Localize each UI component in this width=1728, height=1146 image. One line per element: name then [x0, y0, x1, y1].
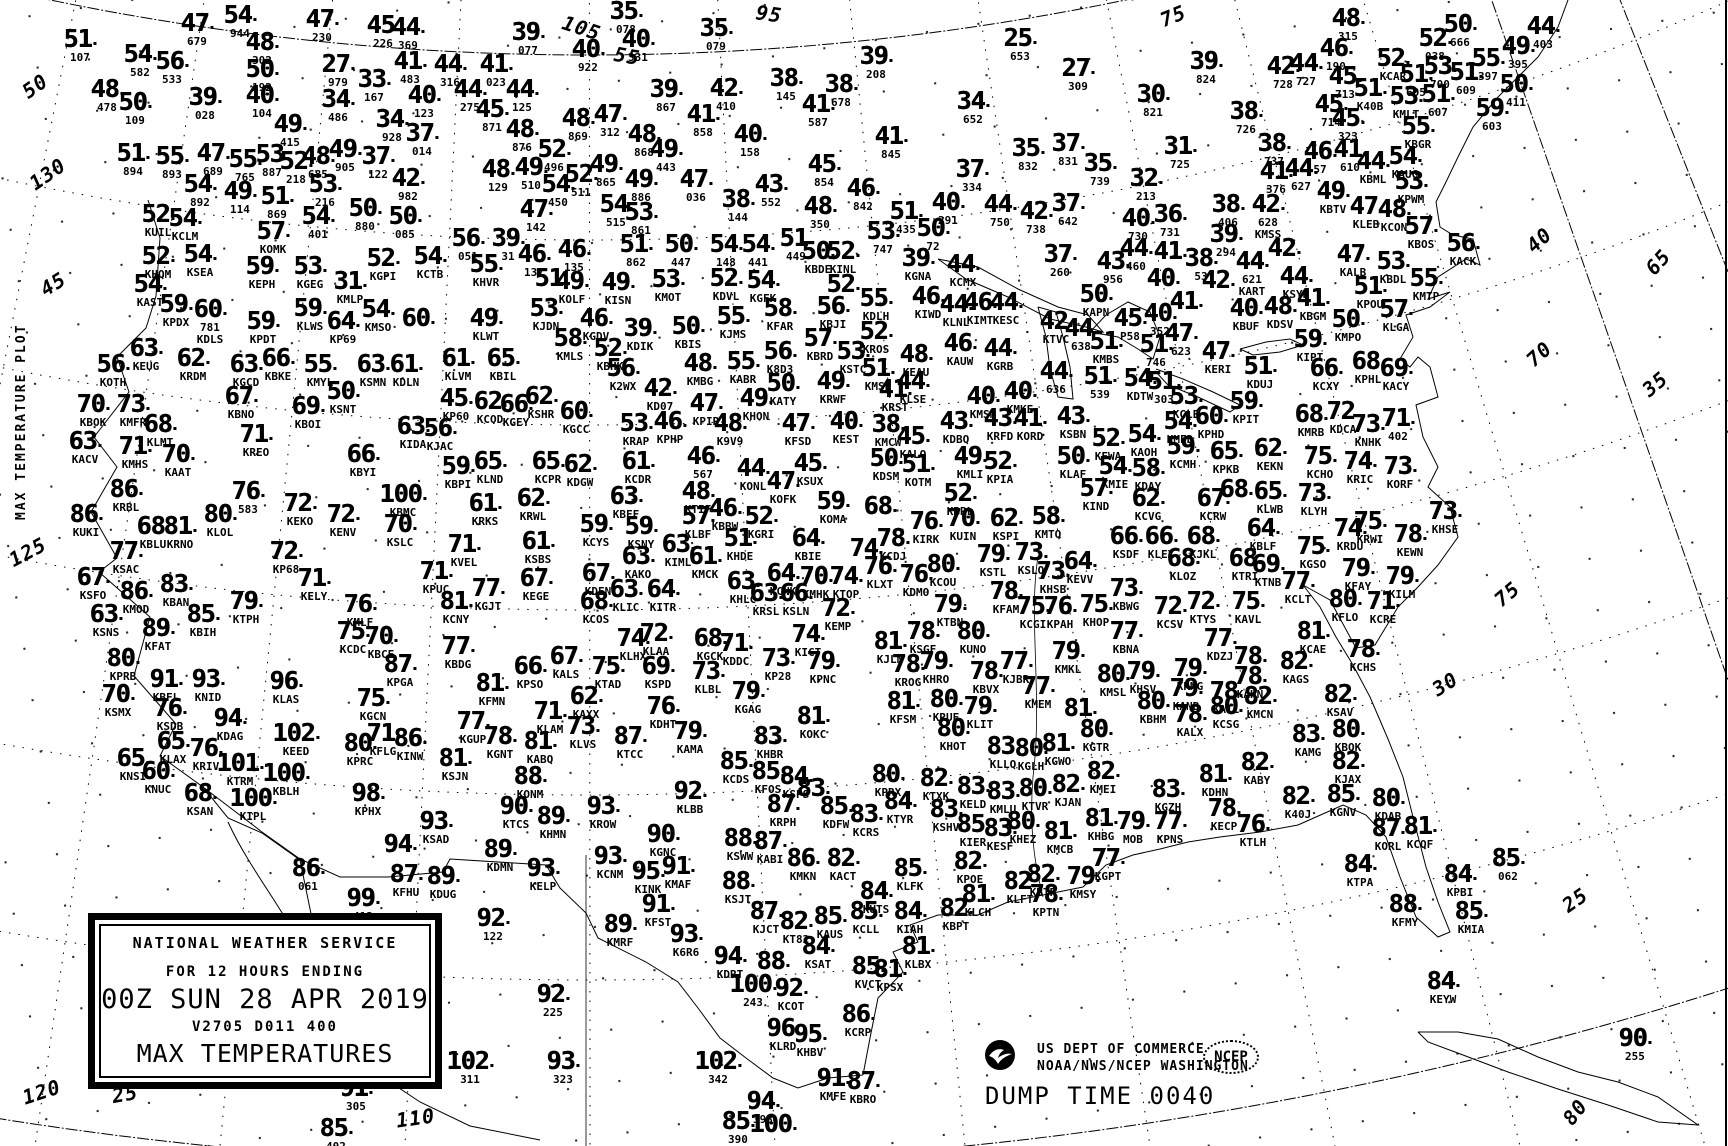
- station-plot-kpdx: 59KPDX: [159, 291, 192, 328]
- station-aux-value: 894: [116, 166, 149, 177]
- station-plot-keri: 47KERI: [1201, 338, 1234, 375]
- station-temp: 82: [1279, 646, 1312, 675]
- station-id: KAAT: [161, 467, 194, 478]
- station-temp: 79: [1051, 636, 1084, 665]
- station-aux-value: 260: [1043, 267, 1076, 278]
- station-plot: 44627: [1284, 155, 1317, 192]
- station-temp: 70: [383, 509, 416, 538]
- station-temp: 55: [1409, 263, 1442, 292]
- station-temp: 67: [76, 562, 109, 591]
- station-plot-kpit: 59KPIT: [1229, 388, 1262, 425]
- station-temp: 64: [646, 574, 679, 603]
- station-temp: 55: [303, 349, 336, 378]
- station-id: KCDR: [621, 474, 654, 485]
- station-temp: 54: [746, 265, 779, 294]
- station-plot: 37642: [1051, 190, 1084, 227]
- station-id: KORD: [1013, 431, 1046, 442]
- station-temp: 35: [1011, 133, 1044, 162]
- station-plot-ksea: 54KSEA: [183, 241, 216, 278]
- station-plot-kcll: 85KCLL: [849, 898, 882, 935]
- station-plot-kitr: 64KITR: [646, 576, 679, 613]
- station-temp: 49: [601, 267, 634, 296]
- station-aux-value: 230: [305, 32, 338, 43]
- station-temp: 81: [438, 743, 471, 772]
- station-plot-kely: 71KELY: [297, 565, 330, 602]
- station-plot: 54401: [301, 203, 334, 240]
- station-temp: 46: [557, 234, 590, 263]
- station-temp: 43: [939, 406, 972, 435]
- station-id: KGJT: [471, 601, 504, 612]
- station-temp: 46: [686, 441, 719, 470]
- station-temp: 90: [499, 791, 532, 820]
- station-plot-kewn: 78KEWN: [1393, 521, 1426, 558]
- station-temp: 50: [671, 311, 704, 340]
- station-temp: 48: [683, 348, 716, 377]
- station-plot: 68: [1219, 476, 1252, 501]
- station-plot-ksan: 68KSAN: [183, 780, 216, 817]
- station-temp: 71: [533, 696, 566, 725]
- station-id: KMSY: [1066, 889, 1099, 900]
- station-id: KGEG: [293, 279, 326, 290]
- station-plot: 50880: [348, 195, 381, 232]
- station-id: KLSE: [896, 394, 929, 405]
- station-temp: 59: [1293, 324, 1326, 353]
- station-plot: 51894: [116, 140, 149, 177]
- station-temp: 80: [1096, 659, 1129, 688]
- station-temp: 84: [883, 786, 916, 815]
- station-plot-kmaf: 91KMAF: [661, 853, 694, 890]
- station-aux-value: 109: [118, 115, 151, 126]
- station-temp: 80: [956, 616, 989, 645]
- station-id: KLFK: [893, 881, 926, 892]
- station-aux-value: 880: [348, 221, 381, 232]
- station-temp: 84: [893, 896, 926, 925]
- station-temp: 39: [1189, 46, 1222, 75]
- station-temp: 89: [483, 834, 516, 863]
- station-temp: 75: [356, 683, 389, 712]
- station-id: KLYH: [1297, 506, 1330, 517]
- station-plot: 54441: [741, 231, 774, 268]
- station-temp: 83: [849, 799, 882, 828]
- station-id: KEYW: [1426, 994, 1459, 1005]
- station-aux-value: 311: [446, 1074, 493, 1085]
- station-plot-kals: 67KALS: [549, 643, 582, 680]
- station-plot: 44727: [1289, 50, 1322, 87]
- station-temp: 85: [893, 853, 926, 882]
- station-plot-khop: 75KHOP: [1079, 591, 1112, 628]
- station-temp: 53: [293, 251, 326, 280]
- station-temp: 85: [1491, 843, 1524, 872]
- station-plot-kmei: 82KMEI: [1086, 758, 1119, 795]
- station-temp: 65: [531, 446, 564, 475]
- station-id: KMBG: [683, 376, 716, 387]
- station-id: KLCH: [961, 907, 994, 918]
- station-plot-ksac: 77KSAC: [109, 538, 142, 575]
- station-temp: 87: [766, 789, 799, 818]
- station-temp: 79: [1116, 806, 1149, 835]
- station-temp: 91: [641, 889, 674, 918]
- station-temp: 78: [1346, 634, 1379, 663]
- station-temp: 47: [1164, 318, 1197, 347]
- station-plot-komk: 57KOMK: [256, 218, 289, 255]
- station-id: KBTR: [1026, 887, 1059, 898]
- station-plot-kdsv: 48KDSV: [1263, 293, 1296, 330]
- station-id: KBDG: [441, 659, 474, 670]
- station-temp: 49: [649, 134, 682, 163]
- station-temp: 81: [1084, 803, 1117, 832]
- station-id: KCLT: [1281, 594, 1314, 605]
- station-temp: 62: [1131, 483, 1164, 512]
- station-temp: 66: [346, 439, 379, 468]
- station-plot-kcof: 81KCOF: [1403, 813, 1436, 850]
- station-temp: 66: [513, 651, 546, 680]
- station-temp: 64: [326, 306, 359, 335]
- station-aux-value: 922: [571, 62, 604, 73]
- station-temp: 56: [763, 336, 796, 365]
- station-temp: 60: [141, 756, 174, 785]
- station-plot-k2wx: 56K2WX: [606, 355, 639, 392]
- station-temp: 95: [631, 856, 664, 885]
- station-id: KTYR: [883, 814, 916, 825]
- station-id: KLAS: [269, 694, 302, 705]
- station-plot-kcos: 68KCOS: [579, 588, 612, 625]
- station-temp: 81: [1043, 816, 1076, 845]
- station-temp: 72: [1153, 591, 1186, 620]
- station-plot-ksmx: 70KSMX: [101, 681, 134, 718]
- station-id: KDFW: [819, 819, 852, 830]
- station-plot-kgrb: 44KGRB: [983, 335, 1016, 372]
- station-aux-value: 867: [649, 102, 682, 113]
- station-temp: 80: [936, 713, 969, 742]
- station-id: KMTP: [1409, 291, 1442, 302]
- station-temp: 99: [346, 883, 379, 912]
- station-temp: 41: [1296, 283, 1329, 312]
- station-temp: 63: [356, 349, 389, 378]
- station-id: KEUG: [129, 361, 162, 372]
- station-plot-kacv: 63KACV: [68, 428, 101, 465]
- station-temp: 69: [291, 391, 324, 420]
- station-aux-value: 078: [609, 24, 642, 35]
- station-id: KCOT: [774, 1001, 807, 1012]
- station-temp: 68: [183, 778, 216, 807]
- station-id: KDIK: [623, 341, 656, 352]
- station-plot-kaat: 70KAAT: [161, 441, 194, 478]
- station-temp: 53: [624, 197, 657, 226]
- station-temp: 44: [896, 366, 929, 395]
- station-temp: 91: [149, 664, 182, 693]
- station-plot-kmrf: 89KMRF: [603, 911, 636, 948]
- station-temp: 51: [116, 138, 149, 167]
- station-plot-kbie: 64KBIE: [791, 525, 824, 562]
- station-plot: 41: [1169, 288, 1202, 313]
- station-plot: 35079: [699, 15, 732, 52]
- station-id: KDUG: [426, 889, 459, 900]
- station-plot: 31725: [1163, 133, 1196, 170]
- station-temp: 58: [1131, 453, 1164, 482]
- station-plot-kdmo: 76KDMO: [899, 561, 932, 598]
- station-id: KNUC: [141, 784, 174, 795]
- station-plot-kcrp: 86KCRP: [841, 1001, 874, 1038]
- station-temp: 54: [413, 241, 446, 270]
- station-plot: 34652: [956, 88, 989, 125]
- station-temp: 80: [1331, 714, 1364, 743]
- station-temp: 79: [229, 586, 262, 615]
- station-temp: 40: [1121, 203, 1154, 232]
- station-temp: 37: [361, 141, 394, 170]
- station-plot: 37122: [361, 143, 394, 180]
- station-aux-value: 323: [546, 1074, 579, 1085]
- station-plot: 51539: [1083, 363, 1116, 400]
- station-temp: 38: [1229, 96, 1262, 125]
- station-plot-ksns: 63KSNS: [89, 601, 122, 638]
- station-temp: 37: [955, 154, 988, 183]
- station-temp: 87: [389, 859, 422, 888]
- station-temp: 49: [589, 149, 622, 178]
- station-id: KCXY: [1309, 381, 1342, 392]
- station-temp: 78: [1393, 519, 1426, 548]
- station-plot: 47230: [305, 6, 338, 43]
- station-temp: 49: [469, 303, 502, 332]
- station-plot-kjan: 82KJAN: [1051, 771, 1084, 808]
- station-plot-kbpi: 59KBPI: [441, 453, 474, 490]
- station-plot-kekn: 62KEKN: [1253, 435, 1286, 472]
- station-temp: 93: [586, 791, 619, 820]
- station-plot: 92122: [476, 905, 509, 942]
- station-plot-kest: 40KEST: [829, 408, 862, 445]
- station-temp: 79: [976, 539, 1009, 568]
- station-id: KDLN: [389, 377, 422, 388]
- station-temp: 71: [297, 563, 330, 592]
- station-plot-kfat: 89KFAT: [141, 615, 174, 652]
- station-plot: 39867: [649, 76, 682, 113]
- station-temp: 102: [694, 1046, 741, 1075]
- station-plot-ktph: 79KTPH: [229, 588, 262, 625]
- station-aux-value: 845: [874, 149, 907, 160]
- station-plot-klfk: 85KLFK: [893, 855, 926, 892]
- station-temp: 43: [754, 169, 787, 198]
- station-temp: 49: [328, 134, 361, 163]
- station-plot: 86061: [291, 855, 324, 892]
- station-plot-klbl: 73KLBL: [691, 658, 724, 695]
- station-id: KSAC: [109, 564, 142, 575]
- station-plot: 39077: [511, 19, 544, 56]
- station-id: KFAR: [763, 321, 796, 332]
- station-plot-kact: 82KACT: [826, 845, 859, 882]
- station-aux-value: 738: [1019, 224, 1052, 235]
- station-plot: 41845: [874, 123, 907, 160]
- station-plot-kcho: 75KCHO: [1303, 443, 1336, 480]
- station-temp: 30: [1136, 79, 1169, 108]
- station-plot-kchs: 78KCHS: [1346, 636, 1379, 673]
- station-temp: 71: [239, 419, 272, 448]
- station-temp: 77: [471, 573, 504, 602]
- station-temp: 45: [807, 149, 840, 178]
- station-plot-klnd: 65KLND: [473, 448, 506, 485]
- station-plot-kbil: 65KBIL: [486, 345, 519, 382]
- station-id: KAMA: [673, 744, 706, 755]
- station-temp: 40: [1229, 293, 1262, 322]
- map-right-border: [1725, 0, 1727, 1146]
- station-id: KGZH: [1151, 802, 1184, 813]
- station-plot-ksbs: 61KSBS: [521, 528, 554, 565]
- station-temp: 47: [180, 8, 213, 37]
- station-plot: 40158: [733, 121, 766, 158]
- station-plot-kbno: 67KBNO: [224, 383, 257, 420]
- station-plot-kphx: 98KPHX: [351, 780, 384, 817]
- station-temp: 56: [1446, 228, 1479, 257]
- station-id: KMHS: [118, 459, 151, 470]
- max-temperature-map: MAX TEMPERATURE PLOT 5110747679549444830…: [0, 0, 1728, 1146]
- station-plot-ktys: 72KTYS: [1186, 588, 1219, 625]
- station-temp: 52: [1091, 423, 1124, 452]
- station-temp: 60: [559, 396, 592, 425]
- station-temp: 72: [326, 499, 359, 528]
- station-id: KMCN: [1243, 709, 1276, 720]
- station-id: KJCT: [749, 924, 782, 935]
- station-temp: 83: [753, 721, 786, 750]
- station-temp: 52: [709, 263, 742, 292]
- station-temp: 92: [774, 973, 807, 1002]
- station-plot-kacy: 69KACY: [1379, 355, 1412, 392]
- station-plot-ksww: 88KSWW: [723, 825, 756, 862]
- station-id: KRIC: [1343, 474, 1376, 485]
- station-aux-value: 821: [1136, 107, 1169, 118]
- station-temp: 56: [96, 349, 129, 378]
- station-plot: 35832: [1011, 135, 1044, 172]
- station-temp: 63: [609, 574, 642, 603]
- station-plot-kslc: 70KSLC: [383, 511, 416, 548]
- station-aux-value: 533: [155, 74, 188, 85]
- station-id: KLWT: [469, 331, 502, 342]
- station-temp: 42: [1251, 189, 1284, 218]
- station-plot-ktnb: 69KTNB: [1251, 551, 1284, 588]
- station-temp: 35: [609, 0, 642, 25]
- station-plot: 37014: [405, 120, 438, 157]
- station-id: KTPA: [1343, 877, 1376, 888]
- station-plot-ktpa: 84KTPA: [1343, 851, 1376, 888]
- station-plot-kgeg: 53KGEG: [293, 253, 326, 290]
- station-temp: 48: [481, 154, 514, 183]
- station-id: KCDS: [719, 774, 752, 785]
- station-temp: 79: [933, 589, 966, 618]
- station-temp: 80: [871, 759, 904, 788]
- station-plot: 27309: [1061, 55, 1094, 92]
- station-plot: 49114: [223, 178, 256, 215]
- station-plot-kisn: 49KISN: [601, 269, 634, 306]
- station-plot-kgjt: 77KGJT: [471, 575, 504, 612]
- station-temp: 37: [1051, 128, 1084, 157]
- station-plot-khbg: 81KHBG: [1084, 805, 1117, 842]
- station-temp: 93: [669, 919, 702, 948]
- station-id: KCRE: [1366, 614, 1399, 625]
- station-temp: 78: [1173, 699, 1206, 728]
- station-temp: 89: [536, 801, 569, 830]
- station-plot: 85062: [1491, 845, 1524, 882]
- station-plot: 71402: [1381, 405, 1414, 442]
- station-temp: 82: [1323, 679, 1356, 708]
- station-id: KBIH: [186, 627, 219, 638]
- station-plot: 48876: [505, 116, 538, 153]
- station-plot-kind: 57KIND: [1079, 475, 1112, 512]
- station-plot: 27979: [321, 51, 354, 88]
- station-temp: 87: [749, 896, 782, 925]
- station-id: KIRK: [909, 534, 942, 545]
- station-aux-value: 144: [721, 212, 754, 223]
- station-temp: 59: [246, 306, 279, 335]
- station-plot-kflo: 80KFLO: [1328, 586, 1361, 623]
- station-plot-krwl: 62KRWL: [516, 485, 549, 522]
- station-temp: 40: [245, 80, 278, 109]
- station-temp: 57: [1404, 211, 1437, 240]
- station-temp: 53: [1389, 81, 1422, 110]
- station-temp: 44: [391, 12, 424, 41]
- station-plot-kavl: 75KAVL: [1231, 588, 1264, 625]
- station-plot-khbr: 83KHBR: [753, 723, 786, 760]
- station-id: KFMY: [1388, 917, 1421, 928]
- station-plot-kcxy: 66KCXY: [1309, 355, 1342, 392]
- station-id: KRFD: [983, 431, 1016, 442]
- station-plot-kreo: 71KREO: [239, 421, 272, 458]
- station-plot-ksat: 84KSAT: [801, 933, 834, 970]
- station-temp: 59: [245, 251, 278, 280]
- station-plot-kmhs: 71KMHS: [118, 433, 151, 470]
- station-id: KESC: [989, 315, 1022, 326]
- station-temp: 86: [69, 499, 102, 528]
- station-plot-ksnt: 50KSNT: [326, 378, 359, 415]
- station-plot-klwb: 65KLWB: [1253, 478, 1286, 515]
- station-plot-kdln: 61KDLN: [389, 351, 422, 388]
- station-aux-value: 107: [63, 52, 96, 63]
- station-temp: 34: [375, 104, 408, 133]
- station-temp: 47: [781, 408, 814, 437]
- station-temp: 70: [101, 679, 134, 708]
- station-plot-keyw: 84KEYW: [1426, 968, 1459, 1005]
- station-temp: 44: [736, 453, 769, 482]
- station-id: KTCC: [613, 749, 646, 760]
- station-temp: 65: [473, 446, 506, 475]
- station-id: KPSO: [513, 679, 546, 690]
- station-temp: 34: [321, 84, 354, 113]
- station-temp: 89: [426, 861, 459, 890]
- station-temp: 45: [793, 448, 826, 477]
- station-temp: 58: [763, 293, 796, 322]
- station-plot-kbyi: 66KBYI: [346, 441, 379, 478]
- station-plot: 51869: [260, 183, 293, 220]
- legend-version: V2705 D011 400: [192, 1019, 338, 1035]
- station-id: KALS: [549, 669, 582, 680]
- station-aux-value: 865: [589, 177, 622, 188]
- station-id: KSLC: [383, 537, 416, 548]
- station-id: KDSM: [869, 471, 902, 482]
- station-id: KEKN: [1253, 461, 1286, 472]
- station-id: KPHP: [653, 434, 686, 445]
- station-temp: 59: [1166, 431, 1199, 460]
- station-id: KCSV: [1153, 619, 1186, 630]
- station-temp: 47: [196, 138, 229, 167]
- station-temp: 55: [859, 283, 892, 312]
- station-temp: 65: [156, 726, 189, 755]
- station-temp: 54: [183, 169, 216, 198]
- station-id: KRWL: [516, 511, 549, 522]
- station-id: KLND: [473, 474, 506, 485]
- station-plot-kclm: 54KCLM: [168, 205, 201, 242]
- station-plot: 50085: [388, 203, 421, 240]
- station-id: KBUF: [1229, 321, 1262, 332]
- station-plot-kelp: 93KELP: [526, 855, 559, 892]
- legend-agency: NATIONAL WEATHER SERVICE: [133, 934, 398, 952]
- station-plot-kmkl: 79KMKL: [1051, 638, 1084, 675]
- station-temp: 52: [826, 236, 859, 265]
